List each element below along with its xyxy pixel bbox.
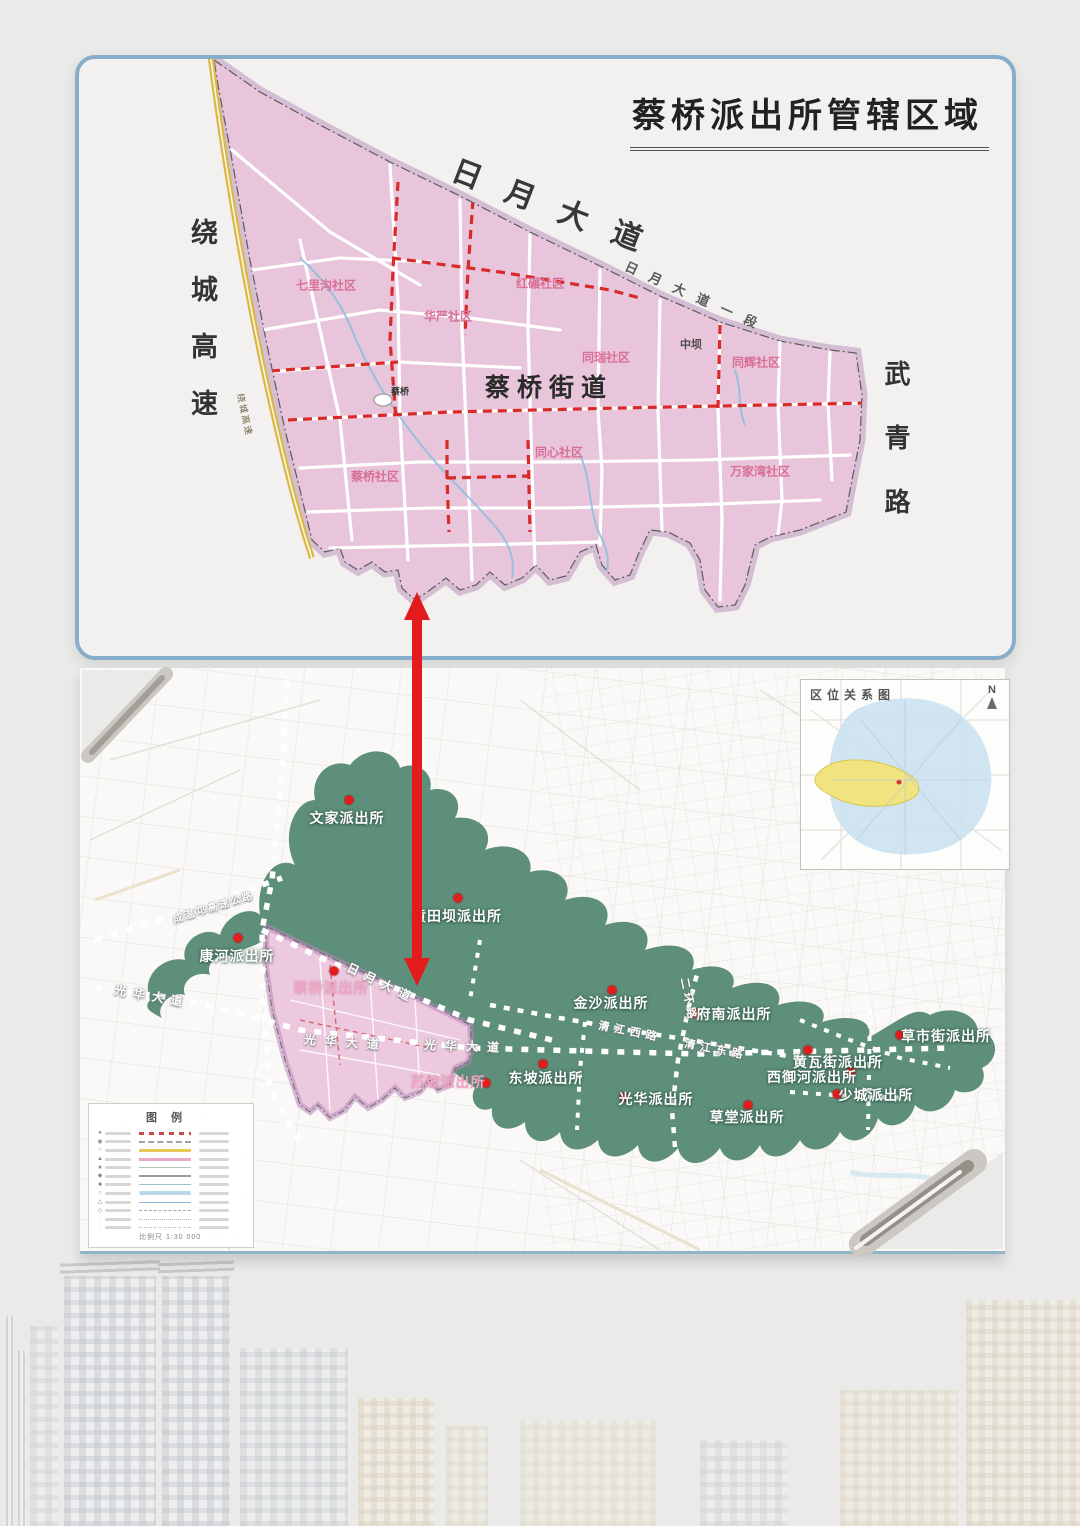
community-label: 万家湾社区 — [730, 463, 790, 480]
legend-symbol: ◉ — [95, 1138, 105, 1146]
community-label: 同辉社区 — [732, 354, 780, 371]
legend-symbol: ○ — [95, 1189, 105, 1197]
legend-label-bar — [199, 1201, 229, 1204]
legend-row: ★ — [89, 1163, 253, 1172]
legend-line-swatch — [139, 1184, 191, 1185]
legend-label-bar — [199, 1175, 229, 1178]
station-dot — [345, 796, 354, 805]
skyline-watermark — [0, 1256, 1080, 1526]
police-station-label: 金沙派出所 — [574, 993, 649, 1013]
skyline-building — [446, 1426, 488, 1526]
legend-line-swatch — [139, 1191, 191, 1195]
north-letter: N — [988, 684, 996, 696]
legend-title: 图例 — [89, 1109, 253, 1125]
legend-row: · — [89, 1215, 253, 1224]
community-label: 中坝 — [680, 336, 702, 352]
legend-label-bar — [105, 1201, 131, 1204]
station-dot — [454, 894, 463, 903]
legend-label-bar — [105, 1209, 131, 1212]
page: 蔡桥派出所管辖区域 绕城高速 日月大道 日月大道一段 武青路 蔡桥街道 蔡桥 绕… — [0, 0, 1080, 1526]
inset-title: 区位关系图 — [810, 686, 895, 703]
legend-label-bar — [199, 1192, 229, 1195]
legend-symbol: · — [95, 1215, 105, 1223]
skyline-building — [18, 1351, 26, 1526]
legend-line-swatch — [139, 1219, 191, 1220]
legend-row: ▲ — [89, 1155, 253, 1164]
legend-symbol: ● — [95, 1129, 105, 1137]
community-label: 七里沟社区 — [296, 277, 356, 294]
police-station-label: 光华派出所 — [619, 1089, 694, 1109]
skyline-building — [6, 1316, 14, 1526]
legend-row: ◉ — [89, 1138, 253, 1147]
inset-map: 区位关系图 N — [800, 679, 1010, 870]
legend-symbol: ◇ — [95, 1207, 105, 1215]
legend-label-bar — [105, 1183, 131, 1186]
skyline-building — [64, 1276, 156, 1526]
legend-row: ■ — [89, 1181, 253, 1190]
legend-row: △ — [89, 1198, 253, 1207]
police-station-label: 苏坡派出所 — [411, 1072, 486, 1092]
legend-line-swatch — [139, 1141, 191, 1143]
road-label-ring-expressway: 绕城高速 — [183, 218, 222, 446]
legend-line-swatch — [139, 1210, 191, 1211]
legend-label-bar — [199, 1132, 229, 1135]
station-dot — [234, 934, 243, 943]
police-station-label: 草市街派出所 — [901, 1026, 991, 1046]
legend-row: ◆ — [89, 1172, 253, 1181]
page-title: 蔡桥派出所管辖区域 — [630, 88, 989, 151]
legend-label-bar — [105, 1166, 131, 1169]
police-station-label: 少城派出所 — [839, 1085, 914, 1105]
legend-row: ◇ — [89, 1206, 253, 1215]
legend-label-bar — [105, 1132, 131, 1135]
north-arrow-icon — [987, 697, 997, 709]
station-dot — [330, 967, 339, 976]
skyline-building — [700, 1440, 788, 1526]
police-station-label: 康河派出所 — [200, 946, 275, 966]
police-station-label: 府南派出所 — [697, 1004, 772, 1024]
legend-symbol: ◆ — [95, 1172, 105, 1180]
community-label: 同心社区 — [535, 444, 583, 461]
legend-line-swatch — [139, 1202, 191, 1203]
north-arrow: N — [987, 684, 997, 709]
road-label: 光华大道 — [424, 1036, 509, 1056]
legend-label-bar — [199, 1158, 229, 1161]
legend-symbol: · — [95, 1224, 105, 1232]
community-label: 红碾社区 — [516, 275, 564, 292]
community-label: 蔡桥社区 — [351, 468, 399, 485]
legend-label-bar — [199, 1209, 229, 1212]
legend-symbol: ★ — [95, 1164, 105, 1172]
legend-symbol: ▲ — [95, 1155, 105, 1163]
legend-label-bar — [199, 1226, 229, 1229]
street-office-label: 蔡桥街道 — [485, 368, 613, 404]
legend-symbol: ■ — [95, 1181, 105, 1189]
skyline-building — [966, 1300, 1080, 1526]
skyline-building — [30, 1326, 58, 1526]
legend-row: ○ — [89, 1146, 253, 1155]
legend-line-swatch — [139, 1158, 191, 1161]
legend-label-bar — [199, 1183, 229, 1186]
bridge-label: 蔡桥 — [391, 385, 409, 398]
legend-line-swatch — [139, 1149, 191, 1152]
skyline-building — [240, 1348, 348, 1526]
legend-line-swatch — [139, 1227, 191, 1228]
legend-label-bar — [105, 1175, 131, 1178]
police-station-label: 文家派出所 — [310, 808, 385, 828]
legend-label-bar — [105, 1192, 131, 1195]
legend-line-swatch — [139, 1167, 191, 1168]
legend-label-bar — [199, 1166, 229, 1169]
legend-line-swatch — [139, 1175, 191, 1177]
police-station-label: 草堂派出所 — [710, 1107, 785, 1127]
skyline-building — [358, 1398, 434, 1526]
road-label-wuqing-road: 武青路 — [878, 360, 915, 552]
community-label: 同瑞社区 — [582, 349, 630, 366]
inset-drawing — [801, 680, 1009, 869]
legend-row: · — [89, 1224, 253, 1233]
legend-label-bar — [199, 1149, 229, 1152]
police-station-label: 东坡派出所 — [509, 1068, 584, 1088]
legend-label-bar — [105, 1218, 131, 1221]
legend-label-bar — [199, 1218, 229, 1221]
legend-rows: ● ◉ ○ ▲ — [89, 1129, 253, 1232]
legend-label-bar — [105, 1226, 131, 1229]
skyline-building — [162, 1276, 230, 1526]
community-label: 华严社区 — [424, 308, 472, 325]
legend-line-swatch — [139, 1132, 191, 1135]
police-station-label: 黄田坝派出所 — [412, 906, 502, 926]
legend-symbol: △ — [95, 1198, 105, 1206]
legend-row: ● — [89, 1129, 253, 1138]
legend-label-bar — [105, 1158, 131, 1161]
legend-scale: 比例尺 1:30 000 — [139, 1232, 201, 1242]
police-station-label: 西御河派出所 — [767, 1067, 857, 1087]
legend: 图例 ● ◉ ○ ▲ — [88, 1103, 254, 1248]
legend-label-bar — [199, 1140, 229, 1143]
legend-symbol: ○ — [95, 1146, 105, 1154]
police-station-label: 蔡桥派出所 — [294, 978, 369, 998]
legend-label-bar — [105, 1140, 131, 1143]
skyline-building — [840, 1390, 958, 1526]
legend-row: ○ — [89, 1189, 253, 1198]
skyline-building — [520, 1420, 656, 1526]
legend-label-bar — [105, 1149, 131, 1152]
